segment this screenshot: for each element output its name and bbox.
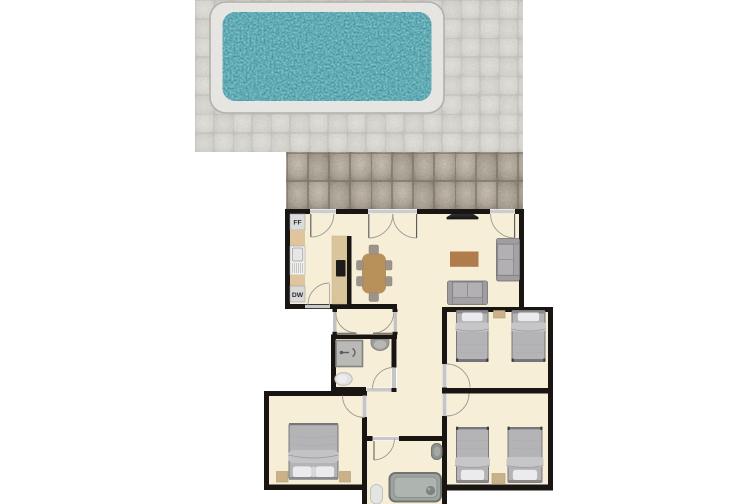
svg-text:DW: DW bbox=[292, 292, 304, 299]
svg-text:FF: FF bbox=[293, 220, 301, 227]
